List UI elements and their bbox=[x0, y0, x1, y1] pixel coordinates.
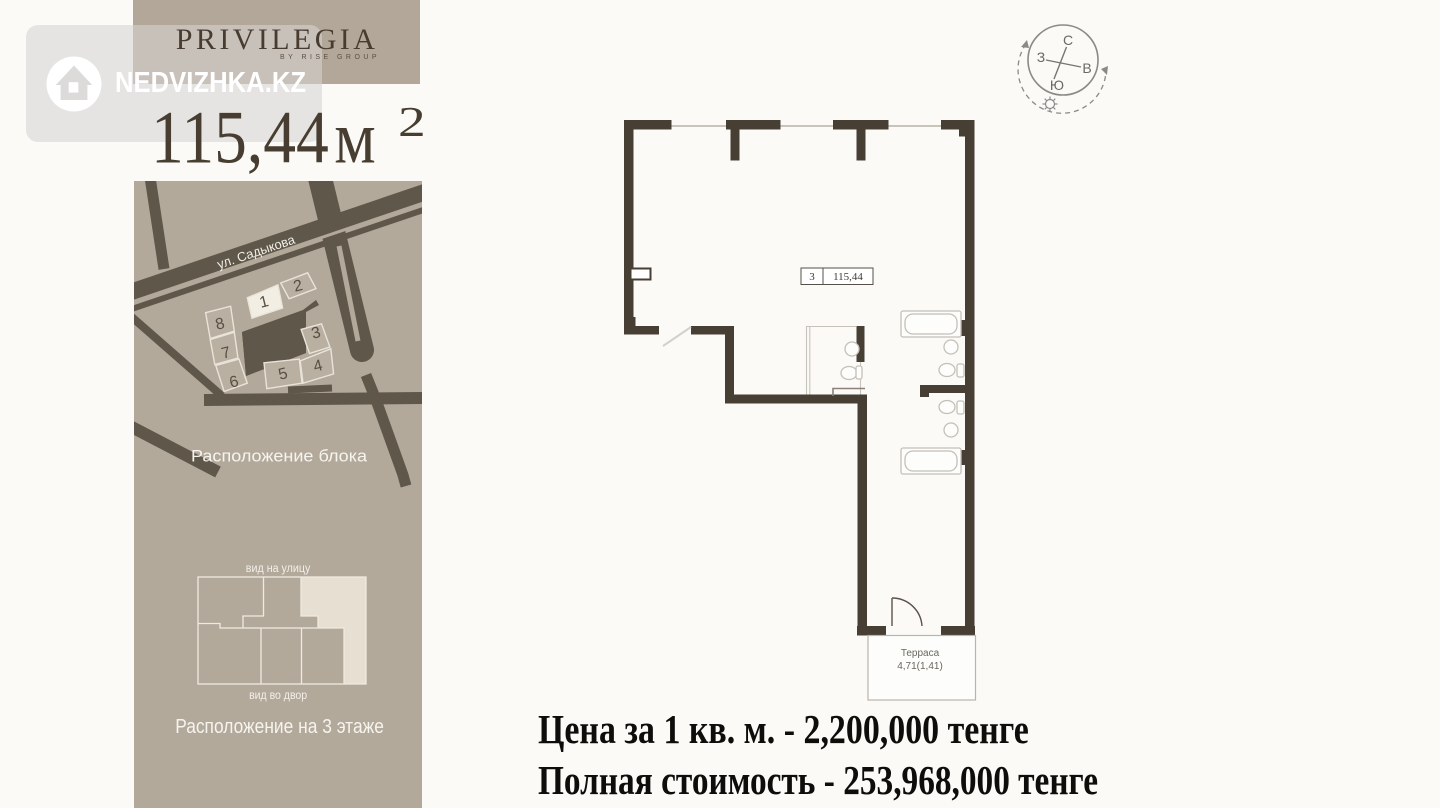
svg-text:З: З bbox=[1037, 49, 1045, 65]
svg-text:Терраса: Терраса bbox=[901, 648, 940, 659]
svg-text:3: 3 bbox=[809, 271, 815, 283]
svg-text:В: В bbox=[1082, 60, 1091, 76]
svg-text:Ю: Ю bbox=[1050, 77, 1064, 93]
svg-text:115,44: 115,44 bbox=[833, 271, 863, 283]
svg-text:вид во двор: вид во двор bbox=[249, 690, 307, 702]
svg-text:Расположение блока: Расположение блока bbox=[191, 447, 368, 466]
svg-text:С: С bbox=[1063, 32, 1073, 48]
svg-text:вид на улицу: вид на улицу bbox=[246, 563, 311, 575]
svg-text:Расположение на 3 этаже: Расположение на 3 этаже bbox=[175, 716, 384, 738]
svg-text:4,71(1,41): 4,71(1,41) bbox=[897, 661, 943, 672]
